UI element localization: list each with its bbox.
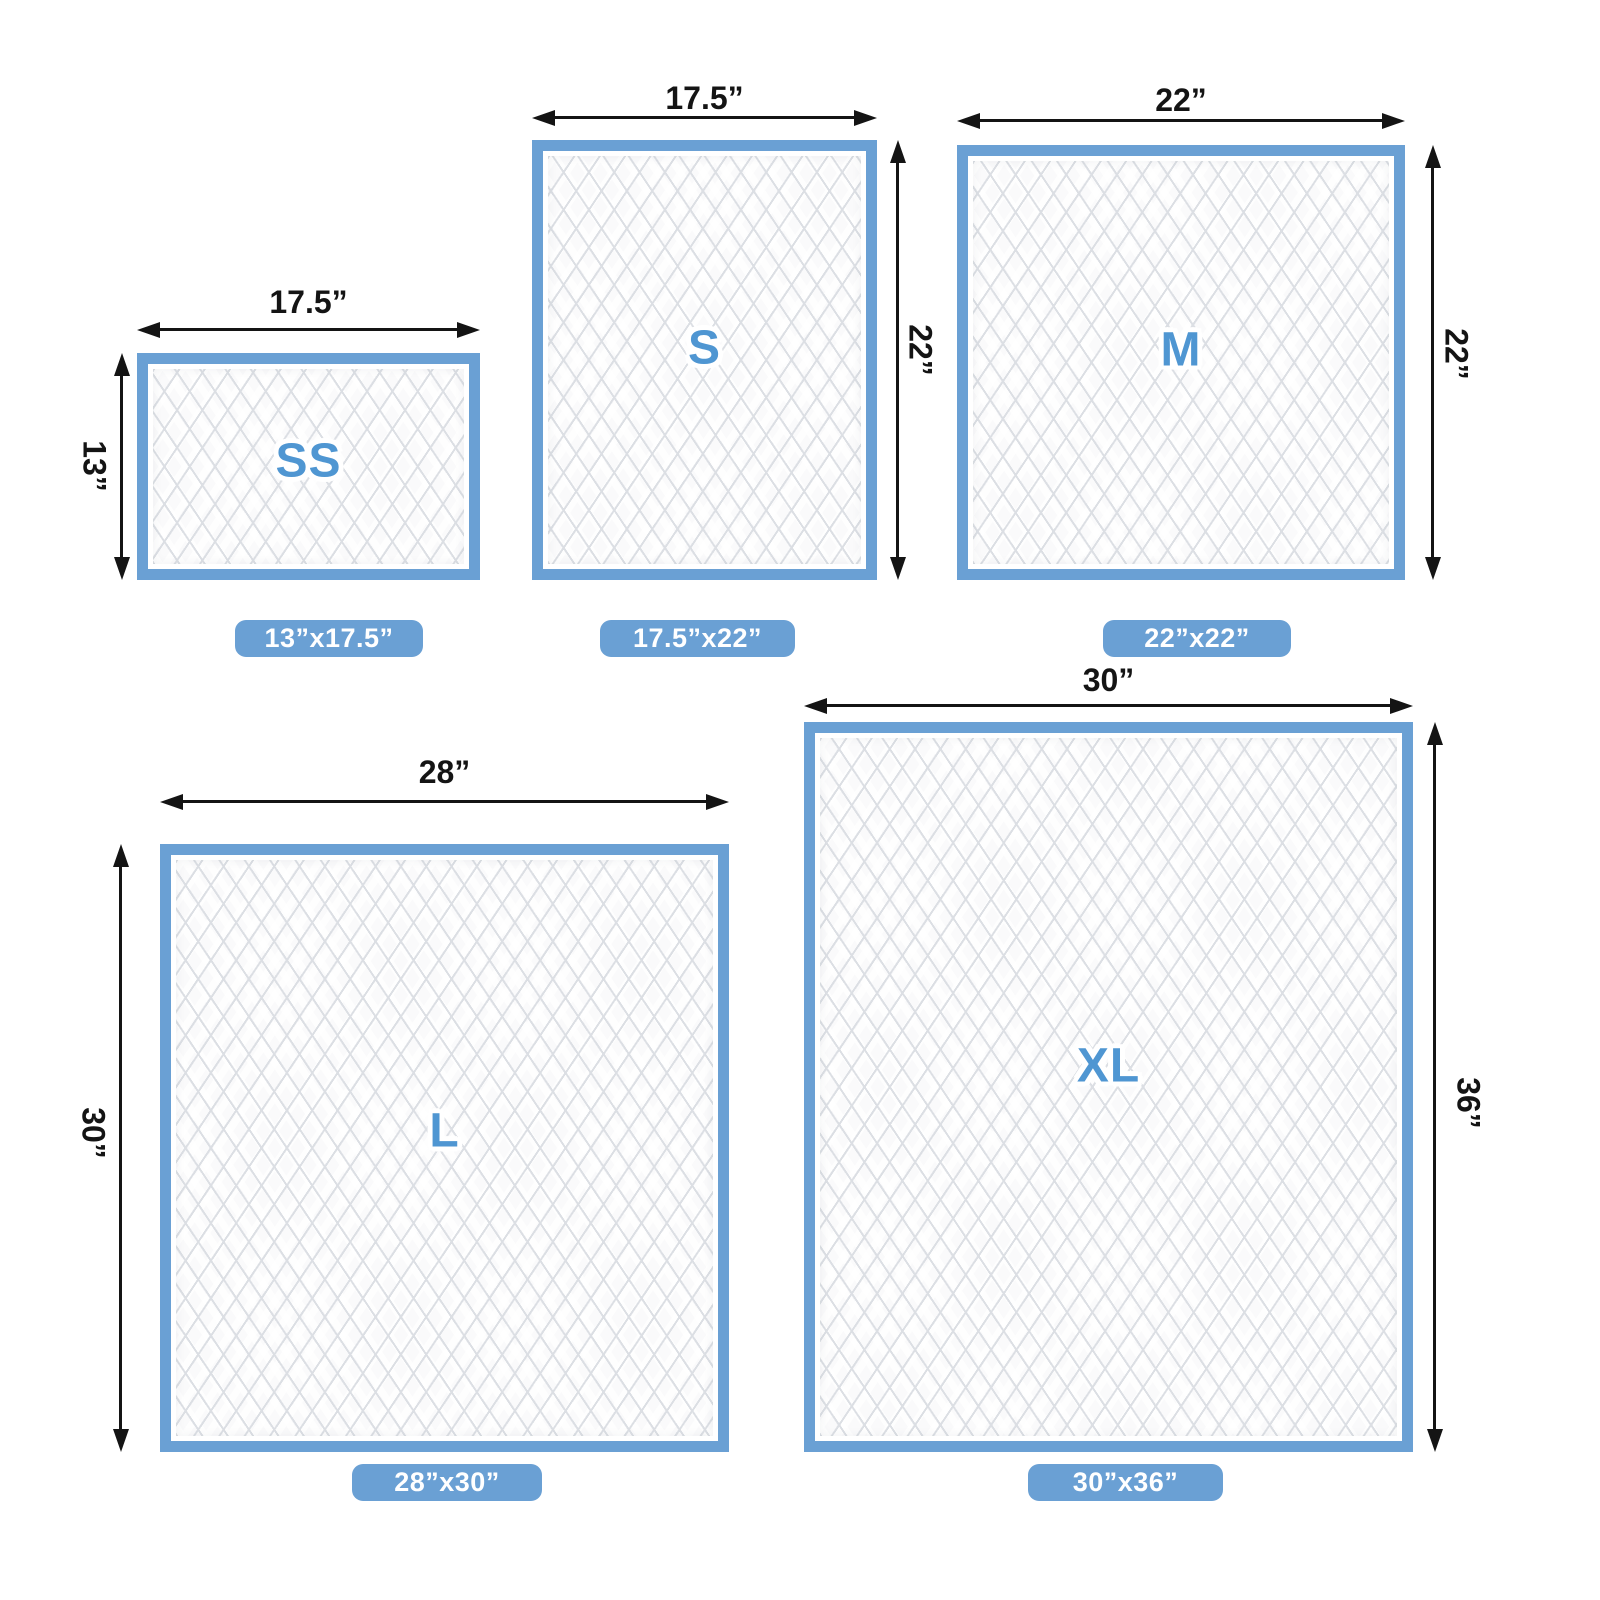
quilt-surface: XL — [820, 738, 1397, 1436]
size-letter: L — [429, 1103, 459, 1158]
arrow-line — [1433, 738, 1436, 1436]
pad-ss: SS — [137, 353, 480, 580]
pad-m: M — [957, 145, 1405, 580]
size-letter: XL — [1077, 1039, 1140, 1094]
quilt-surface: M — [973, 161, 1389, 564]
width-dimension-label: 28” — [160, 752, 729, 792]
height-dimension-text: 30” — [75, 1107, 112, 1159]
width-arrow-icon — [804, 694, 1413, 718]
height-arrow-icon — [109, 844, 133, 1452]
size-badge: 17.5”x22” — [600, 620, 795, 657]
width-arrow-icon — [957, 109, 1405, 133]
width-arrow-icon — [137, 318, 480, 342]
pad-l: L — [160, 844, 729, 1452]
size-letter: M — [1161, 323, 1202, 378]
pad-xl: XL — [804, 722, 1413, 1452]
arrow-line — [119, 860, 122, 1436]
size-badge: 22”x22” — [1103, 620, 1291, 657]
arrow-line — [896, 156, 899, 564]
height-dimension-text: 22” — [1438, 328, 1475, 380]
arrow-line — [973, 119, 1389, 122]
arrow-line — [1431, 161, 1434, 564]
quilt-surface: SS — [153, 369, 464, 564]
arrow-line — [120, 369, 123, 564]
height-arrow-icon — [1423, 722, 1447, 1452]
width-dimension-label: 17.5” — [137, 282, 480, 322]
quilt-surface: S — [548, 156, 861, 564]
size-badge: 13”x17.5” — [235, 620, 423, 657]
arrow-line — [176, 800, 713, 803]
height-dimension-text: 22” — [902, 324, 939, 376]
height-dimension-text: 36” — [1450, 1077, 1487, 1129]
height-dimension-text: 13” — [76, 440, 113, 492]
width-arrow-icon — [160, 790, 729, 814]
pad-s: S — [532, 140, 877, 580]
quilt-surface: L — [176, 860, 713, 1436]
size-chart-diagram: 17.5” 13” SS 13”x17.5” 17.5” 22” S 17.5”… — [0, 0, 1600, 1600]
size-letter: S — [688, 320, 721, 375]
size-badge: 30”x36” — [1028, 1464, 1223, 1501]
arrow-line — [153, 328, 464, 331]
size-letter: SS — [275, 433, 341, 488]
width-arrow-icon — [532, 106, 877, 130]
arrow-line — [548, 116, 861, 119]
size-badge: 28”x30” — [352, 1464, 542, 1501]
arrow-line — [820, 704, 1397, 707]
height-arrow-icon — [110, 353, 134, 580]
